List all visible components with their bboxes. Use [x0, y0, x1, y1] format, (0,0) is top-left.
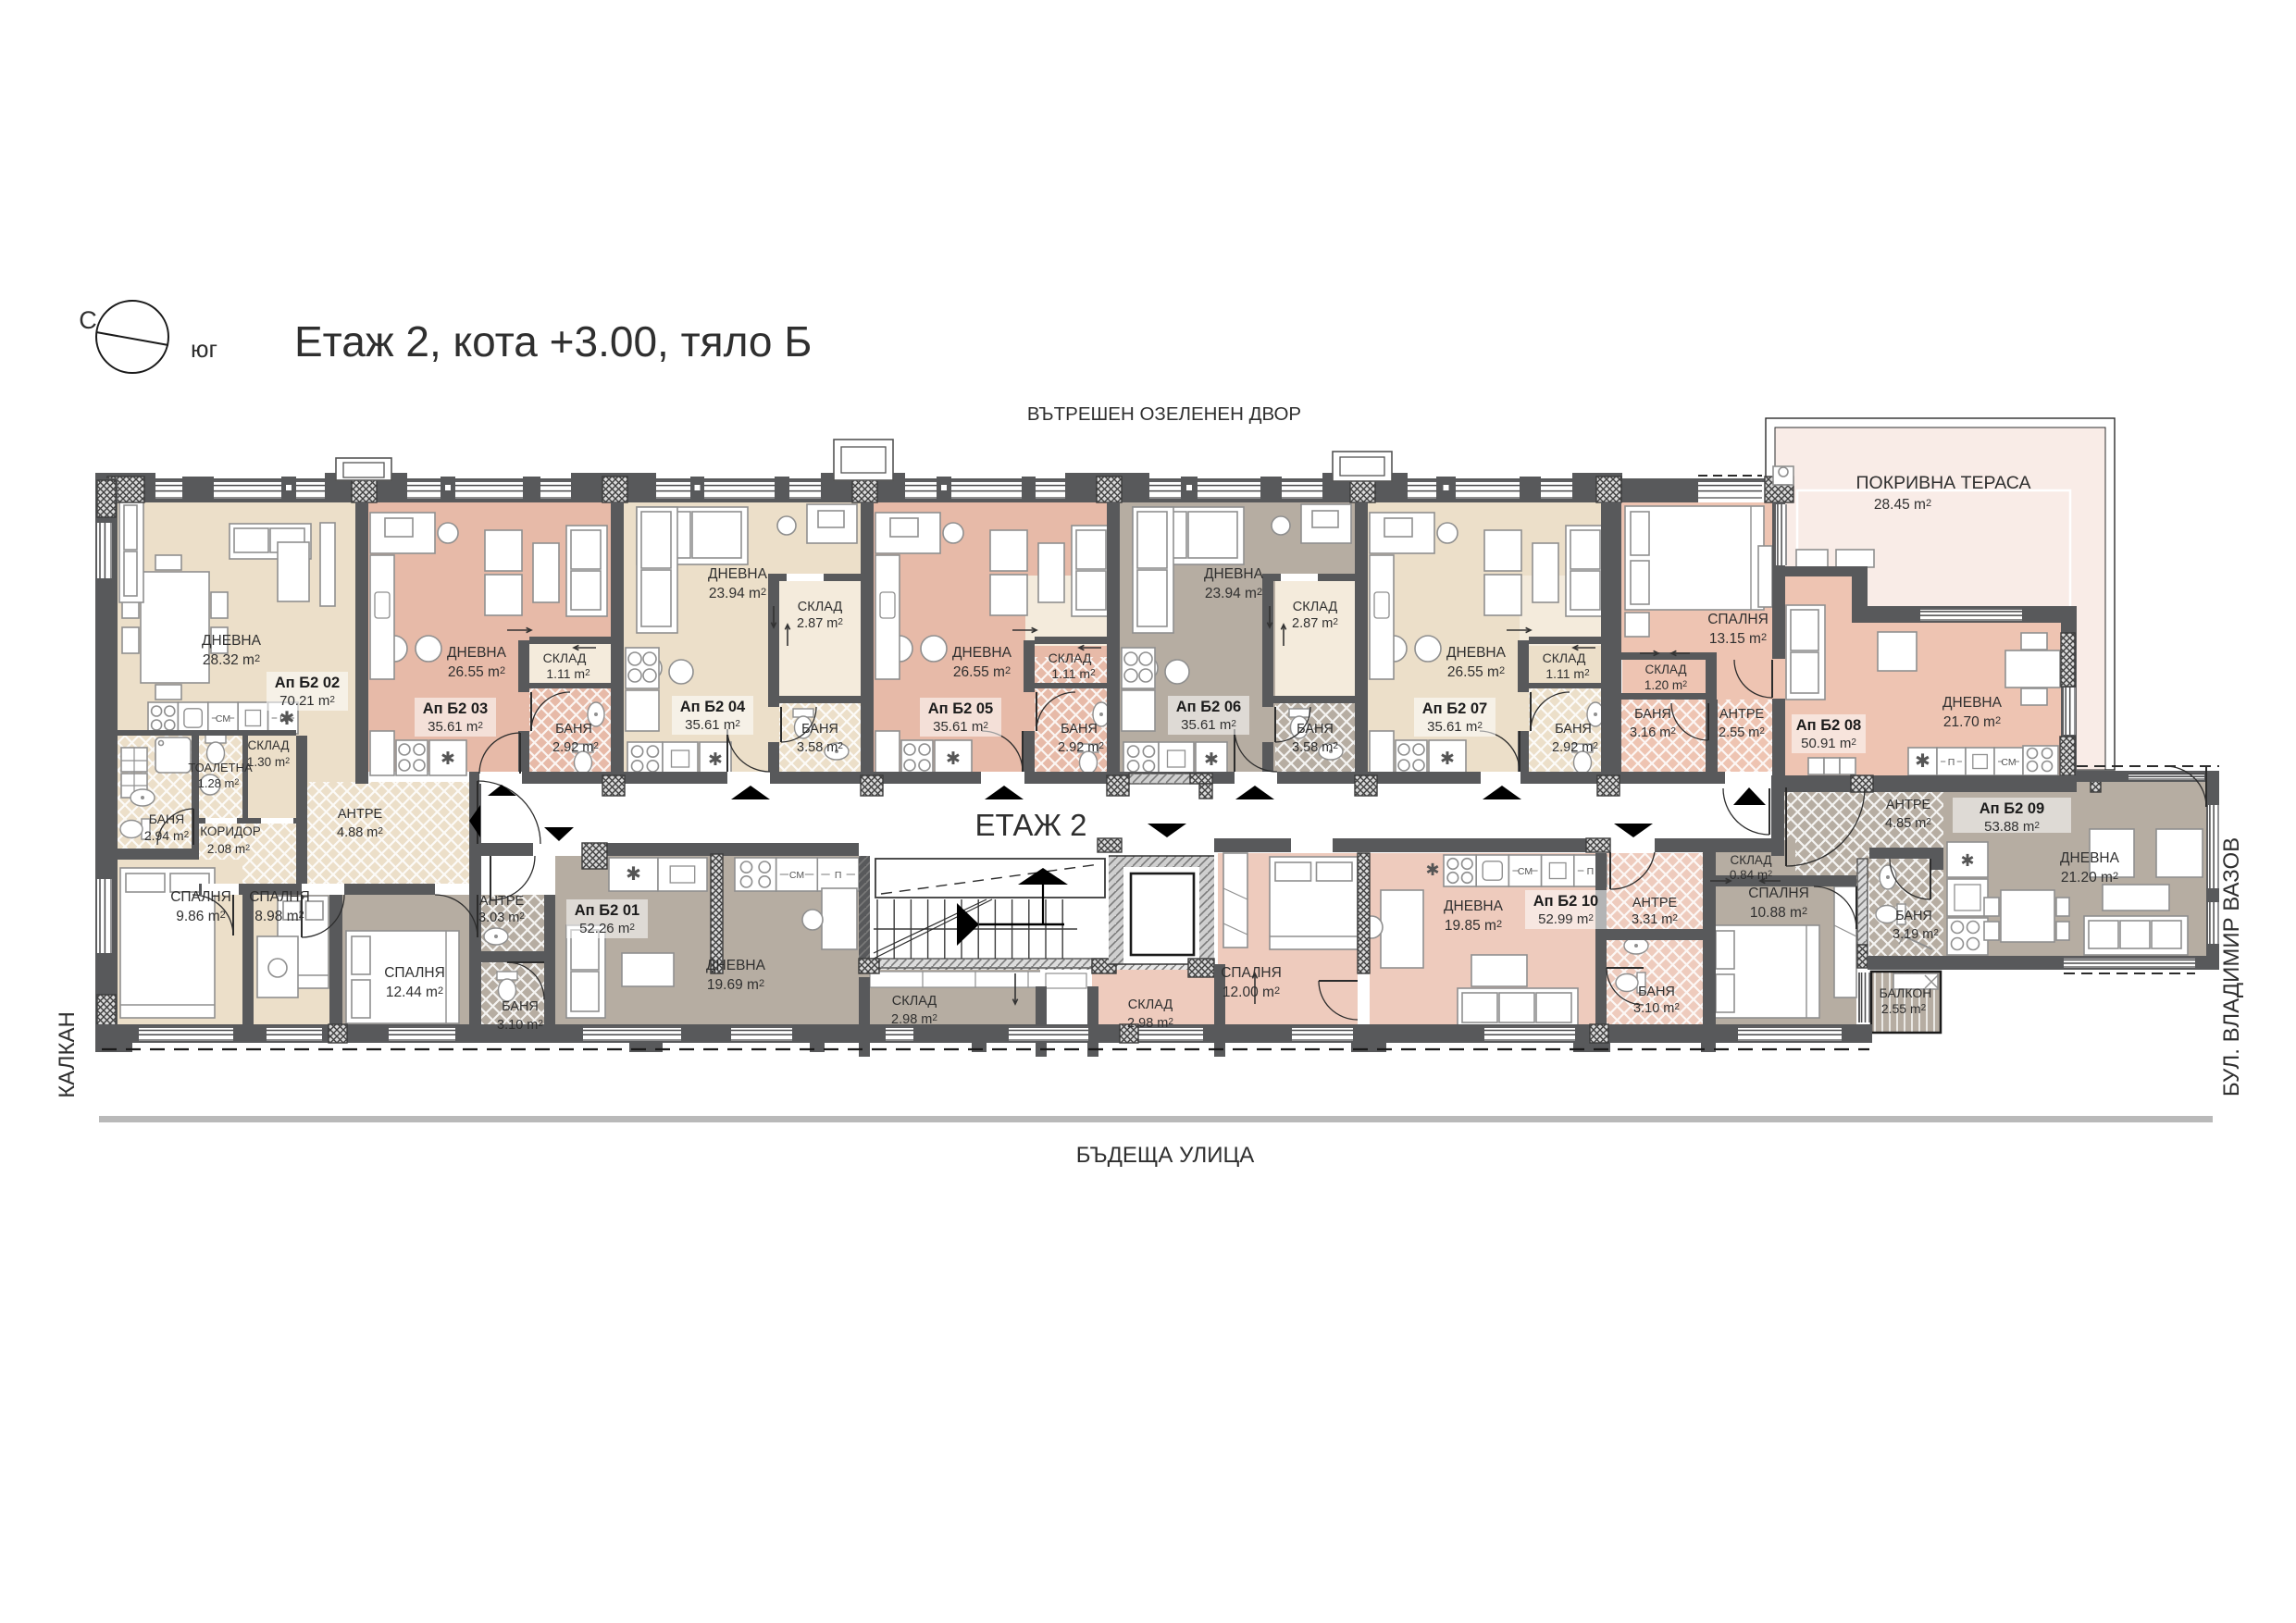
svg-text:0.84 m2: 0.84 m2: [1730, 868, 1772, 882]
svg-text:✱: ✱: [1440, 750, 1455, 769]
svg-text:СПАЛНЯ: СПАЛНЯ: [1221, 965, 1282, 981]
svg-text:ПОКРИВНА ТЕРАСА: ПОКРИВНА ТЕРАСА: [1856, 473, 2031, 493]
svg-text:2.08 m2: 2.08 m2: [207, 842, 250, 856]
svg-text:23.94 m2: 23.94 m2: [1205, 586, 1262, 601]
svg-text:БЪДЕЩА УЛИЦА: БЪДЕЩА УЛИЦА: [1076, 1143, 1255, 1168]
svg-text:Ап Б2 08: Ап Б2 08: [1796, 717, 1861, 734]
svg-text:СКЛАД: СКЛАД: [247, 738, 289, 752]
svg-text:ДНЕВНА: ДНЕВНА: [708, 566, 768, 582]
svg-text:28.45 m2: 28.45 m2: [1874, 497, 1931, 513]
svg-text:П: П: [1587, 866, 1595, 877]
svg-text:СКЛАД: СКЛАД: [1293, 600, 1338, 614]
svg-text:СПАЛНЯ: СПАЛНЯ: [249, 889, 310, 905]
svg-text:35.61 m2: 35.61 m2: [1181, 717, 1236, 733]
svg-text:9.86 m2: 9.86 m2: [176, 909, 226, 924]
svg-text:19.69 m2: 19.69 m2: [707, 977, 764, 993]
svg-text:3.03 m2: 3.03 m2: [478, 911, 525, 925]
svg-text:✱: ✱: [279, 709, 295, 729]
svg-text:3.19 m2: 3.19 m2: [1893, 927, 1939, 942]
svg-text:Ап Б2 02: Ап Б2 02: [275, 675, 340, 691]
svg-text:35.61 m2: 35.61 m2: [428, 719, 483, 735]
svg-text:ДНЕВНА: ДНЕВНА: [1204, 566, 1264, 582]
svg-text:Ап Б2 10: Ап Б2 10: [1533, 893, 1598, 910]
svg-text:СПАЛНЯ: СПАЛНЯ: [384, 965, 445, 981]
svg-text:ДНЕВНА: ДНЕВНА: [447, 645, 507, 661]
svg-text:8.98 m2: 8.98 m2: [254, 909, 304, 924]
svg-text:1.28 m2: 1.28 m2: [198, 776, 240, 790]
svg-text:10.88 m2: 10.88 m2: [1750, 905, 1807, 921]
svg-text:3.16 m2: 3.16 m2: [1630, 725, 1676, 740]
svg-text:12.44 m2: 12.44 m2: [386, 985, 443, 1000]
svg-text:БАНЯ: БАНЯ: [1634, 707, 1671, 722]
svg-text:ДНЕВНА: ДНЕВНА: [952, 645, 1012, 661]
svg-text:Ап Б2 09: Ап Б2 09: [1980, 800, 2044, 817]
svg-text:✱: ✱: [1204, 750, 1219, 770]
svg-text:52.26 m2: 52.26 m2: [579, 921, 635, 936]
svg-text:АНТРЕ: АНТРЕ: [1719, 707, 1765, 722]
svg-text:70.21 m2: 70.21 m2: [279, 693, 335, 709]
svg-text:БАНЯ: БАНЯ: [502, 999, 539, 1014]
svg-text:СКЛАД: СКЛАД: [892, 994, 937, 1009]
svg-text:ДНЕВНА: ДНЕВНА: [202, 633, 262, 649]
svg-text:50.91 m2: 50.91 m2: [1801, 736, 1856, 751]
svg-text:ДНЕВНА: ДНЕВНА: [1444, 898, 1504, 914]
svg-text:3.10 m2: 3.10 m2: [497, 1018, 543, 1033]
svg-text:КОРИДОР: КОРИДОР: [200, 824, 261, 838]
svg-text:35.61 m2: 35.61 m2: [933, 719, 988, 735]
svg-text:✱: ✱: [946, 750, 961, 769]
svg-text:СКЛАД: СКЛАД: [1049, 650, 1092, 665]
svg-text:3.58 m2: 3.58 m2: [1292, 740, 1338, 755]
svg-text:Ап Б2 01: Ап Б2 01: [575, 902, 639, 919]
svg-text:1.20 m2: 1.20 m2: [1644, 678, 1687, 692]
svg-text:2.92 m2: 2.92 m2: [1552, 740, 1598, 755]
svg-text:28.32 m2: 28.32 m2: [203, 652, 260, 668]
svg-text:2.55 m2: 2.55 m2: [1719, 725, 1765, 740]
svg-text:СМ: СМ: [1518, 866, 1533, 877]
svg-text:АНТРЕ: АНТРЕ: [1886, 798, 1931, 812]
svg-text:Етаж 2, кота +3.00, тяло Б: Етаж 2, кота +3.00, тяло Б: [294, 317, 812, 365]
svg-text:1.11 m2: 1.11 m2: [1051, 666, 1096, 681]
svg-text:2.55 m2: 2.55 m2: [1881, 1001, 1927, 1016]
svg-text:СМ: СМ: [216, 713, 230, 725]
svg-text:✱: ✱: [441, 750, 455, 769]
svg-text:1.11 m2: 1.11 m2: [546, 666, 590, 681]
svg-text:С: С: [79, 306, 97, 334]
svg-text:СКЛАД: СКЛАД: [1128, 997, 1173, 1012]
svg-text:СКЛАД: СКЛАД: [1543, 650, 1586, 665]
svg-text:35.61 m2: 35.61 m2: [1427, 719, 1483, 735]
svg-text:✱: ✱: [708, 750, 723, 770]
svg-text:2.87 m2: 2.87 m2: [797, 616, 843, 631]
svg-text:юг: юг: [191, 335, 217, 363]
svg-text:ДНЕВНА: ДНЕВНА: [1446, 645, 1507, 661]
svg-text:ВЪТРЕШЕН ОЗЕЛЕНЕН ДВОР: ВЪТРЕШЕН ОЗЕЛЕНЕН ДВОР: [1027, 403, 1301, 425]
svg-text:ДНЕВНА: ДНЕВНА: [706, 958, 766, 973]
svg-text:✱: ✱: [1915, 751, 1930, 772]
svg-text:АНТРЕ: АНТРЕ: [338, 807, 383, 822]
svg-text:26.55 m2: 26.55 m2: [448, 664, 505, 680]
svg-text:Ап Б2 05: Ап Б2 05: [928, 700, 993, 717]
svg-text:БАНЯ: БАНЯ: [1555, 722, 1592, 737]
svg-text:СМ: СМ: [2001, 757, 2016, 768]
svg-text:35.61 m2: 35.61 m2: [685, 717, 740, 733]
svg-text:КАЛКАН: КАЛКАН: [55, 1011, 80, 1098]
svg-text:26.55 m2: 26.55 m2: [953, 664, 1011, 680]
svg-text:БАЛКОН: БАЛКОН: [1880, 985, 1932, 1000]
svg-text:21.20 m2: 21.20 m2: [2061, 870, 2118, 886]
svg-text:4.88 m2: 4.88 m2: [337, 825, 383, 840]
svg-text:ТОАЛЕТНА: ТОАЛЕТНА: [188, 761, 253, 774]
svg-text:✱: ✱: [626, 864, 641, 885]
svg-text:2.98 m2: 2.98 m2: [1127, 1016, 1173, 1031]
svg-text:3.31 m2: 3.31 m2: [1632, 912, 1678, 927]
svg-text:БАНЯ: БАНЯ: [1638, 985, 1675, 999]
svg-text:БАНЯ: БАНЯ: [1061, 722, 1098, 737]
svg-text:СКЛАД: СКЛАД: [798, 600, 843, 614]
svg-text:П: П: [835, 870, 842, 881]
svg-text:Ап Б2 04: Ап Б2 04: [680, 699, 746, 715]
svg-text:СПАЛНЯ: СПАЛНЯ: [170, 889, 231, 905]
svg-text:52.99 m2: 52.99 m2: [1538, 911, 1594, 927]
svg-text:П: П: [1948, 757, 1955, 768]
svg-text:2.92 m2: 2.92 m2: [1058, 740, 1104, 755]
svg-text:СПАЛНЯ: СПАЛНЯ: [1707, 612, 1769, 627]
svg-text:19.85 m2: 19.85 m2: [1445, 918, 1502, 934]
svg-text:Ап Б2 06: Ап Б2 06: [1176, 699, 1241, 715]
svg-text:БУЛ. ВЛАДИМИР ВАЗОВ: БУЛ. ВЛАДИМИР ВАЗОВ: [2219, 837, 2244, 1096]
svg-text:4.85 m2: 4.85 m2: [1885, 816, 1931, 831]
svg-text:СМ: СМ: [789, 870, 804, 881]
svg-text:ДНЕВНА: ДНЕВНА: [2060, 850, 2120, 866]
svg-text:3.10 m2: 3.10 m2: [1633, 1001, 1680, 1016]
svg-text:3.58 m2: 3.58 m2: [797, 740, 843, 755]
svg-text:БАНЯ: БАНЯ: [1297, 722, 1334, 737]
svg-text:СПАЛНЯ: СПАЛНЯ: [1748, 886, 1809, 901]
svg-text:13.15 m2: 13.15 m2: [1709, 631, 1767, 647]
svg-text:23.94 m2: 23.94 m2: [709, 586, 766, 601]
svg-text:ДНЕВНА: ДНЕВНА: [1942, 695, 2003, 711]
svg-text:✱: ✱: [1960, 851, 1974, 870]
svg-text:12.00 m2: 12.00 m2: [1222, 985, 1280, 1000]
svg-text:2.92 m2: 2.92 m2: [552, 740, 599, 755]
svg-text:2.94 m2: 2.94 m2: [144, 828, 190, 843]
svg-text:21.70 m2: 21.70 m2: [1943, 714, 2001, 730]
svg-text:1.11 m2: 1.11 m2: [1545, 666, 1590, 681]
svg-text:БАНЯ: БАНЯ: [149, 811, 184, 826]
svg-text:53.88 m2: 53.88 m2: [1984, 819, 2040, 835]
svg-text:АНТРЕ: АНТРЕ: [479, 894, 525, 909]
svg-text:26.55 m2: 26.55 m2: [1447, 664, 1505, 680]
svg-text:АНТРЕ: АНТРЕ: [1632, 896, 1678, 911]
svg-text:Ап Б2 03: Ап Б2 03: [423, 700, 488, 717]
svg-text:БАНЯ: БАНЯ: [555, 722, 592, 737]
svg-text:СКЛАД: СКЛАД: [543, 650, 587, 665]
svg-text:2.98 m2: 2.98 m2: [891, 1012, 937, 1027]
svg-text:✱: ✱: [1425, 861, 1439, 879]
svg-text:1.30 m2: 1.30 m2: [247, 755, 290, 769]
svg-text:БАНЯ: БАНЯ: [801, 722, 838, 737]
svg-text:СКЛАД: СКЛАД: [1730, 853, 1771, 867]
svg-text:Ап Б2 07: Ап Б2 07: [1422, 700, 1487, 717]
svg-text:БАНЯ: БАНЯ: [1895, 909, 1932, 923]
svg-text:ЕТАЖ 2: ЕТАЖ 2: [974, 808, 1086, 842]
svg-text:2.87 m2: 2.87 m2: [1292, 616, 1338, 631]
svg-text:СКЛАД: СКЛАД: [1644, 663, 1686, 676]
